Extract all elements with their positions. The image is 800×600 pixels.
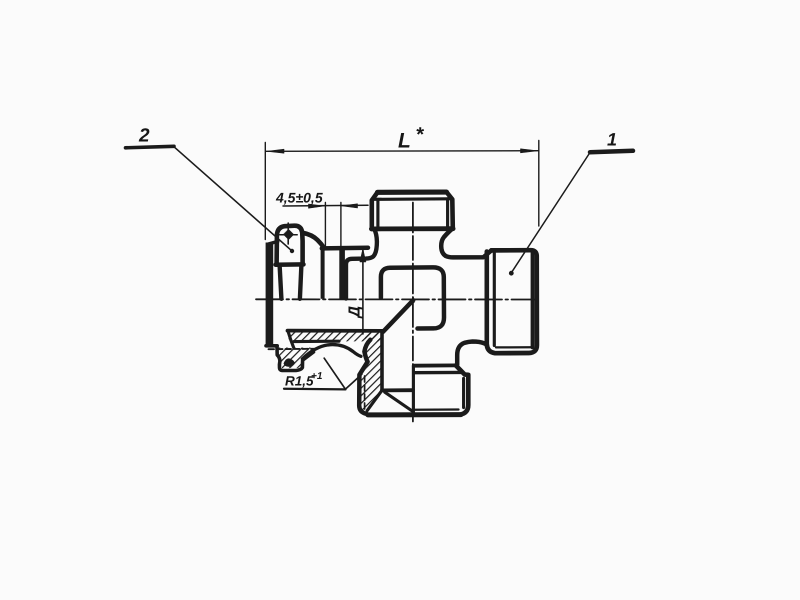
svg-text:4,5±0,5: 4,5±0,5 <box>275 190 323 206</box>
svg-text:R1,5: R1,5 <box>285 374 314 389</box>
svg-text:Д: Д <box>347 306 364 320</box>
svg-text:1: 1 <box>607 130 617 150</box>
svg-text:L: L <box>398 130 411 153</box>
svg-text:2: 2 <box>138 126 150 147</box>
svg-text:+1: +1 <box>311 371 323 382</box>
svg-text:*: * <box>416 124 425 146</box>
